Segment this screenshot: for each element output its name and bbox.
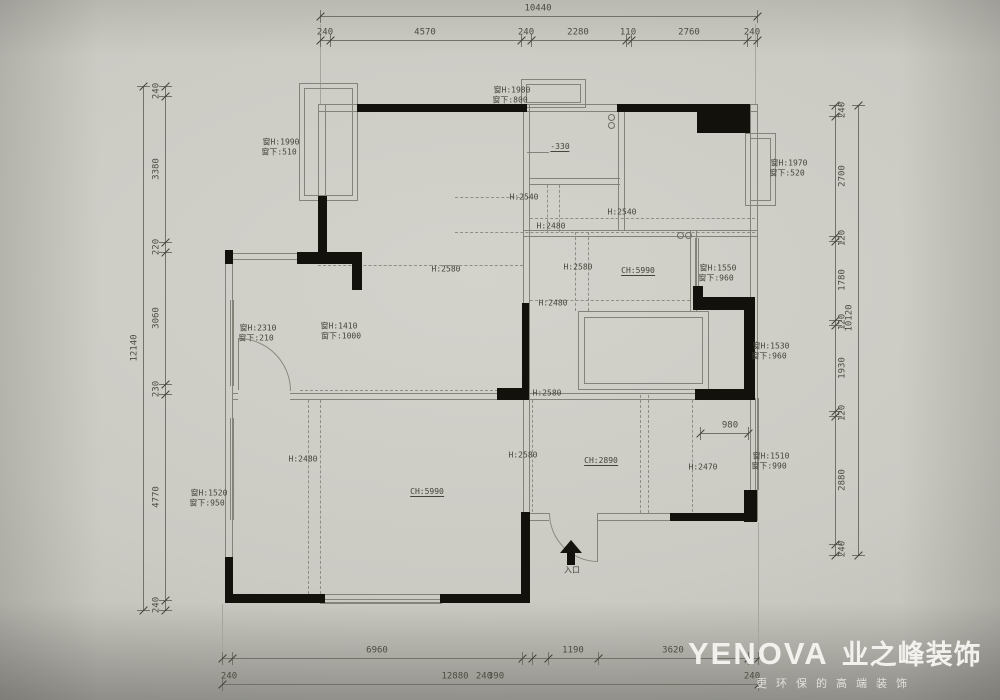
dimension-line [700, 433, 748, 434]
dimension-line [222, 658, 758, 659]
logo-tagline: 更环保的高端装饰 [756, 675, 998, 691]
dimension-label: 12140 [131, 334, 140, 361]
dimension-label: 2760 [678, 29, 700, 38]
dashed-line [530, 218, 755, 219]
annotation-label: CH:2890 [584, 456, 618, 466]
wall-black [744, 378, 755, 400]
annotation-label: 窗下:1000 [321, 332, 361, 341]
annotation-label: 窗下:210 [238, 334, 273, 343]
wall-line [530, 520, 549, 521]
dimension-line [320, 16, 757, 17]
logo-brand-cn: 业之峰装饰 [842, 633, 982, 672]
annotation-label: -330 [550, 142, 569, 152]
guide-line [222, 604, 223, 658]
dimension-label: 2880 [839, 469, 848, 491]
annotation-label: H:2580 [509, 451, 538, 460]
dashed-line [640, 395, 641, 513]
annotation-label: 窗H:1510 [753, 452, 790, 461]
wall-line [232, 393, 238, 394]
annotation-label: 窗H:1410 [321, 322, 358, 331]
wall-black [497, 388, 523, 400]
wall-black [352, 252, 362, 290]
dashed-line [320, 400, 321, 594]
wall-line [529, 178, 620, 179]
logo: YENOVA 业之峰装饰 更环保的高端装饰 [688, 633, 998, 691]
floor-plan-canvas: 1044024045702402280110276024012140240338… [0, 0, 1000, 700]
door-dot [608, 122, 615, 129]
wall-line [290, 399, 695, 400]
logo-brand-row: YENOVA 业之峰装饰 [688, 633, 998, 672]
door-dot [608, 114, 615, 121]
dimension-label: 220 [153, 239, 162, 255]
annotation-label: 窗下:800 [492, 96, 527, 105]
dimension-label: 12880 [441, 673, 468, 682]
inner-room [584, 317, 703, 384]
door-dot [677, 232, 684, 239]
wall-black [617, 104, 697, 112]
dimension-label: 3620 [662, 647, 684, 656]
annotation-label: CH:5990 [410, 487, 444, 497]
bay-window [304, 88, 353, 196]
annotation-label: 窗H:1970 [771, 159, 808, 168]
wall-black [697, 104, 750, 133]
annotation-label: 窗H:1530 [753, 342, 790, 351]
wall-black [522, 303, 529, 400]
annotation-label: 窗下:960 [751, 352, 786, 361]
window [225, 300, 234, 386]
dimension-label: 240 [744, 29, 760, 38]
dimension-label: 1780 [839, 269, 848, 291]
dashed-line [455, 232, 755, 233]
dimension-label: 10120 [846, 304, 855, 331]
entry-arrow-stem [567, 552, 575, 565]
dimension-label: 980 [722, 422, 738, 431]
annotation-label: H:2480 [537, 222, 566, 231]
dashed-line [308, 400, 309, 594]
wall-black [521, 512, 530, 594]
annotation-label: H:2480 [539, 299, 568, 308]
dimension-label: 110 [620, 29, 636, 38]
wall-line [232, 399, 238, 400]
annotation-label: 窗H:1520 [191, 489, 228, 498]
wall-line [232, 259, 300, 260]
dimension-label: 120 [839, 405, 848, 421]
wall-line [529, 184, 620, 185]
dashed-line [648, 395, 649, 513]
dimension-label: 3380 [153, 158, 162, 180]
annotation-label: 窗H:1990 [263, 138, 300, 147]
dimension-line [320, 40, 757, 41]
wall-black [670, 513, 757, 521]
annotation-label: H:2470 [689, 463, 718, 472]
dimension-label: 4770 [153, 486, 162, 508]
annotation-label: H:2540 [608, 208, 637, 217]
annotation-label: H:2480 [289, 455, 318, 464]
dimension-label: 240 [518, 29, 534, 38]
annotation-label: 窗H:1550 [700, 264, 737, 273]
annotation-label: 窗下:960 [698, 274, 733, 283]
wall-black [357, 104, 527, 112]
dashed-line [692, 400, 693, 512]
dashed-line [575, 232, 576, 311]
dimension-line [835, 105, 836, 555]
window [225, 418, 234, 520]
window [750, 398, 759, 490]
wall-line [523, 236, 757, 237]
dimension-label: 1190 [562, 647, 584, 656]
dimension-label: 240 [317, 29, 333, 38]
dimension-label: 240 [839, 102, 848, 118]
dimension-label: 120 [839, 230, 848, 246]
dimension-label: 240 [839, 541, 848, 557]
dimension-line [222, 684, 758, 685]
bay-window [750, 138, 771, 201]
wall-black [440, 594, 530, 603]
annotation-label: 窗H:1980 [494, 86, 531, 95]
annotation-label: H:2580 [432, 265, 461, 274]
balcony [526, 84, 581, 103]
window [320, 594, 442, 604]
door-dot [685, 232, 692, 239]
wall-line [232, 253, 300, 254]
annotation-label: H:2540 [510, 193, 539, 202]
annotation-label: H:2580 [564, 263, 593, 272]
annotation-label: 窗H:2310 [240, 324, 277, 333]
annotation-label: 窗下:520 [769, 169, 804, 178]
dimension-label: 240 [153, 83, 162, 99]
annotation-label: CH:5990 [621, 266, 655, 276]
dimension-label: 1930 [839, 357, 848, 379]
dimension-label: 240 [221, 673, 237, 682]
dimension-label: 2700 [839, 165, 848, 187]
dimension-label: 10440 [524, 5, 551, 14]
annotation-label: 窗下:510 [261, 148, 296, 157]
dimension-label: 3060 [153, 307, 162, 329]
dashed-line [588, 232, 589, 311]
level-marker-line [527, 152, 549, 153]
dimension-line [143, 86, 144, 610]
dimension-label: 4570 [414, 29, 436, 38]
door-leaf [597, 513, 598, 561]
wall-black [225, 250, 233, 264]
dashed-line [318, 265, 523, 266]
dimension-label: 240 [153, 597, 162, 613]
dimension-label: 2280 [567, 29, 589, 38]
logo-brand-en: YENOVA [688, 636, 829, 672]
wall-line [290, 393, 695, 394]
wall-line [530, 513, 549, 514]
dimension-label: 390 [488, 673, 504, 682]
annotation-label: 窗下:950 [189, 499, 224, 508]
door-arc [238, 338, 291, 391]
wall-black [225, 557, 233, 602]
annotation-label: H:2580 [533, 389, 562, 398]
annotation-label: 窗下:990 [751, 462, 786, 471]
dimension-label: 6960 [366, 647, 388, 656]
dimension-line [165, 86, 166, 610]
dimension-label: 230 [153, 381, 162, 397]
dashed-line [300, 390, 523, 391]
dimension-line [858, 105, 859, 555]
annotation-label: 入口 [564, 566, 580, 575]
door-leaf [238, 338, 239, 390]
wall-black [225, 594, 325, 603]
